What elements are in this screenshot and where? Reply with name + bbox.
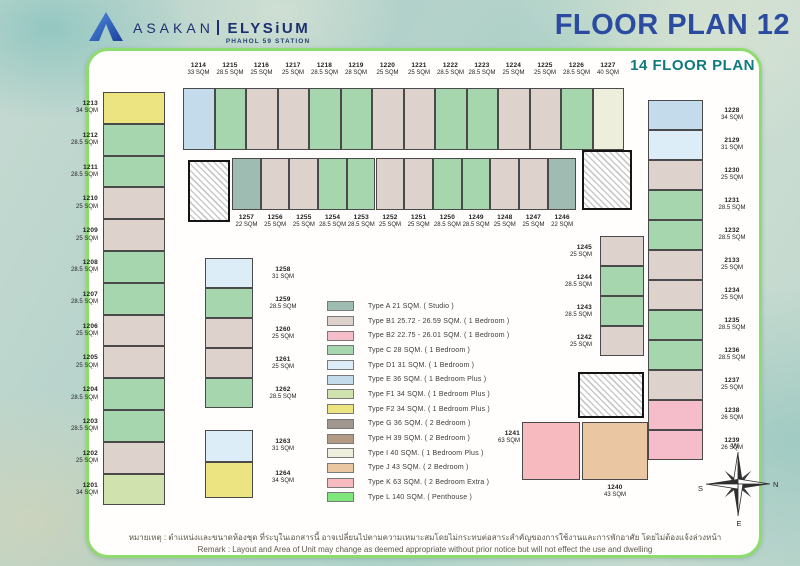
unit-1261	[205, 348, 253, 378]
unit-label-1212: 121228.5 SQM	[34, 132, 98, 148]
unit-label-1246: 124622 SQM	[544, 214, 581, 230]
legend-label-A: Type A 21 SQM. ( Studio )	[368, 303, 454, 310]
unit-1255	[289, 158, 318, 210]
unit-label-1227: 122740 SQM	[589, 62, 628, 78]
unit-1211	[103, 156, 165, 188]
legend-swatch-I	[327, 448, 354, 458]
unit-1243	[600, 296, 644, 326]
unit-1213	[103, 92, 165, 124]
unit-1210	[103, 187, 165, 219]
unit-label-1209: 120925 SQM	[34, 227, 98, 243]
legend-row-F1: Type F1 34 SQM. ( 1 Bedroom Plus )	[327, 387, 509, 402]
unit-1248	[490, 158, 519, 210]
unit-1224	[498, 88, 530, 150]
remark-thai: หมายเหตุ : ตำแหน่งและขนาดห้องชุด ที่ระบุ…	[100, 531, 750, 544]
unit-label-1263: 126331 SQM	[257, 438, 309, 454]
legend-row-H: Type H 39 SQM. ( 2 Bedroom )	[327, 431, 509, 446]
unit-1231	[648, 190, 703, 220]
unit-1215	[215, 88, 247, 150]
unit-1254	[318, 158, 347, 210]
legend-label-L: Type L 140 SQM. ( Penthouse )	[368, 494, 472, 501]
legend-swatch-G	[327, 419, 354, 429]
unit-label-1243: 124328.5 SQM	[528, 304, 592, 320]
unit-label-1245: 124525 SQM	[528, 244, 592, 260]
unit-1226	[561, 88, 593, 150]
legend-label-I: Type I 40 SQM. ( 1 Bedroom Plus )	[368, 450, 484, 457]
unit-1245	[600, 236, 644, 266]
unit-1232	[648, 220, 703, 250]
unit-1256	[261, 158, 290, 210]
unit-1202	[103, 442, 165, 474]
legend-label-C: Type C 28 SQM. ( 1 Bedroom )	[368, 347, 470, 354]
unit-label-1238: 123826 SQM	[708, 407, 756, 423]
legend-swatch-F1	[327, 389, 354, 399]
legend-row-J: Type J 43 SQM. ( 2 Bedroom )	[327, 461, 509, 476]
unit-label-1262: 126228.5 SQM	[257, 386, 309, 402]
unit-1251	[404, 158, 433, 210]
legend-row-G: Type G 36 SQM. ( 2 Bedroom )	[327, 417, 509, 432]
unit-1209	[103, 219, 165, 251]
legend-swatch-K	[327, 478, 354, 488]
unit-1259	[205, 288, 253, 318]
unit-label-1204: 120428.5 SQM	[34, 386, 98, 402]
unit-1235	[648, 310, 703, 340]
legend-label-G: Type G 36 SQM. ( 2 Bedroom )	[368, 420, 470, 427]
unit-label-1231: 123128.5 SQM	[708, 197, 756, 213]
unit-1241	[522, 422, 580, 480]
legend-label-K: Type K 63 SQM. ( 2 Bedroom Extra )	[368, 479, 489, 486]
unit-label-1258: 125831 SQM	[257, 266, 309, 282]
unit-label-1201: 120134 SQM	[34, 482, 98, 498]
unit-label-1240: 124043 SQM	[582, 484, 648, 500]
unit-1240	[582, 422, 648, 480]
unit-1208	[103, 251, 165, 283]
unit-label-1206: 120625 SQM	[34, 323, 98, 339]
unit-1201	[103, 474, 165, 506]
legend-row-D1: Type D1 31 SQM. ( 1 Bedroom )	[327, 358, 509, 373]
unit-1238	[648, 400, 703, 430]
legend-swatch-B2	[327, 331, 354, 341]
unit-1234	[648, 280, 703, 310]
unit-2133	[648, 250, 703, 280]
unit-1236	[648, 340, 703, 370]
remark: หมายเหตุ : ตำแหน่งและขนาดห้องชุด ที่ระบุ…	[100, 531, 750, 554]
unit-1253	[347, 158, 376, 210]
legend-label-B1: Type B1 25.72 - 26.59 SQM. ( 1 Bedroom )	[368, 318, 509, 325]
brand-logo: ASAKAN ELYSiUM PHAHOL 59 STATION	[88, 11, 310, 45]
unit-1252	[376, 158, 405, 210]
unit-1221	[404, 88, 436, 150]
compass-rose-icon: W N S E	[694, 436, 782, 530]
unit-1217	[278, 88, 310, 150]
unit-label-1213: 121334 SQM	[34, 100, 98, 116]
unit-1227	[593, 88, 625, 150]
unit-1203	[103, 410, 165, 442]
unit-2129	[648, 130, 703, 160]
unit-1219	[341, 88, 373, 150]
unit-1263	[205, 430, 253, 462]
unit-1216	[246, 88, 278, 150]
compass-north-label: N	[773, 480, 778, 489]
unit-1204	[103, 378, 165, 410]
unit-1222	[435, 88, 467, 150]
unit-label-1264: 126434 SQM	[257, 470, 309, 486]
unit-label-1228: 122834 SQM	[708, 107, 756, 123]
unit-label-1230: 123025 SQM	[708, 167, 756, 183]
legend-swatch-F2	[327, 404, 354, 414]
unit-label-1211: 121128.5 SQM	[34, 164, 98, 180]
unit-label-1207: 120728.5 SQM	[34, 291, 98, 307]
unit-1264	[205, 462, 253, 498]
unit-1205	[103, 346, 165, 378]
compass-south-label: S	[698, 484, 703, 493]
brand-divider	[217, 20, 219, 35]
legend-row-B2: Type B2 22.75 - 26.01 SQM. ( 1 Bedroom )	[327, 328, 509, 343]
unit-label-2129: 212931 SQM	[708, 137, 756, 153]
unit-1228	[648, 100, 703, 130]
stair-core-left	[188, 160, 230, 222]
legend-row-B1: Type B1 25.72 - 26.59 SQM. ( 1 Bedroom )	[327, 314, 509, 329]
floor-subtitle: 14 FLOOR PLAN	[630, 57, 755, 74]
unit-label-1259: 125928.5 SQM	[257, 296, 309, 312]
legend-label-J: Type J 43 SQM. ( 2 Bedroom )	[368, 464, 469, 471]
brand-name-secondary: ELYSiUM	[227, 20, 310, 37]
unit-1247	[519, 158, 548, 210]
legend-label-E: Type E 36 SQM. ( 1 Bedroom Plus )	[368, 376, 486, 383]
unit-1218	[309, 88, 341, 150]
unit-1249	[462, 158, 491, 210]
unit-label-1260: 126025 SQM	[257, 326, 309, 342]
legend-swatch-H	[327, 434, 354, 444]
unit-1223	[467, 88, 499, 150]
unit-label-1202: 120225 SQM	[34, 450, 98, 466]
unit-1246	[548, 158, 577, 210]
unit-1257	[232, 158, 261, 210]
unit-1207	[103, 283, 165, 315]
unit-1260	[205, 318, 253, 348]
unit-label-1261: 126125 SQM	[257, 356, 309, 372]
unit-1262	[205, 378, 253, 408]
unit-1230	[648, 160, 703, 190]
legend-swatch-E	[327, 375, 354, 385]
unit-label-1236: 123628.5 SQM	[708, 347, 756, 363]
unit-1242	[600, 326, 644, 356]
unit-label-1234: 123425 SQM	[708, 287, 756, 303]
unit-1244	[600, 266, 644, 296]
unit-label-1242: 124225 SQM	[528, 334, 592, 350]
unit-label-1208: 120828.5 SQM	[34, 259, 98, 275]
unit-label-1244: 124428.5 SQM	[528, 274, 592, 290]
unit-label-1210: 121025 SQM	[34, 195, 98, 211]
asakan-a-icon	[88, 11, 126, 42]
stair-core-bottom	[578, 372, 644, 418]
legend-swatch-A	[327, 301, 354, 311]
unit-label-2133: 213325 SQM	[708, 257, 756, 273]
legend-label-F2: Type F2 34 SQM. ( 1 Bedroom Plus )	[368, 406, 490, 413]
brand-subtitle: PHAHOL 59 STATION	[226, 38, 310, 45]
legend-row-L: Type L 140 SQM. ( Penthouse )	[327, 490, 509, 505]
legend-row-A: Type A 21 SQM. ( Studio )	[327, 299, 509, 314]
legend-label-B2: Type B2 22.75 - 26.01 SQM. ( 1 Bedroom )	[368, 332, 509, 339]
legend-label-D1: Type D1 31 SQM. ( 1 Bedroom )	[368, 362, 474, 369]
unit-1206	[103, 315, 165, 347]
page-title: FLOOR PLAN 12	[490, 9, 790, 42]
unit-label-1235: 123528.5 SQM	[708, 317, 756, 333]
legend-row-I: Type I 40 SQM. ( 1 Bedroom Plus )	[327, 446, 509, 461]
legend-row-K: Type K 63 SQM. ( 2 Bedroom Extra )	[327, 475, 509, 490]
unit-1237	[648, 370, 703, 400]
legend-swatch-J	[327, 463, 354, 473]
unit-1214	[183, 88, 215, 150]
unit-type-legend: Type A 21 SQM. ( Studio )Type B1 25.72 -…	[327, 299, 509, 505]
compass-west-label: W	[731, 441, 739, 450]
legend-label-F1: Type F1 34 SQM. ( 1 Bedroom Plus )	[368, 391, 490, 398]
unit-1220	[372, 88, 404, 150]
legend-row-C: Type C 28 SQM. ( 1 Bedroom )	[327, 343, 509, 358]
legend-swatch-L	[327, 492, 354, 502]
legend-row-F2: Type F2 34 SQM. ( 1 Bedroom Plus )	[327, 402, 509, 417]
unit-1250	[433, 158, 462, 210]
legend-swatch-C	[327, 345, 354, 355]
unit-label-1237: 123725 SQM	[708, 377, 756, 393]
unit-label-1232: 123228.5 SQM	[708, 227, 756, 243]
legend-row-E: Type E 36 SQM. ( 1 Bedroom Plus )	[327, 372, 509, 387]
remark-english: Remark : Layout and Area of Unit may cha…	[100, 545, 750, 554]
legend-label-H: Type H 39 SQM. ( 2 Bedroom )	[368, 435, 470, 442]
stair-core-right	[582, 150, 632, 210]
unit-1212	[103, 124, 165, 156]
unit-1225	[530, 88, 562, 150]
legend-swatch-B1	[327, 316, 354, 326]
unit-label-1205: 120525 SQM	[34, 354, 98, 370]
compass-east-label: E	[736, 519, 741, 528]
unit-1258	[205, 258, 253, 288]
brand-name: ASAKAN	[133, 20, 214, 36]
legend-swatch-D1	[327, 360, 354, 370]
unit-label-1203: 120328.5 SQM	[34, 418, 98, 434]
